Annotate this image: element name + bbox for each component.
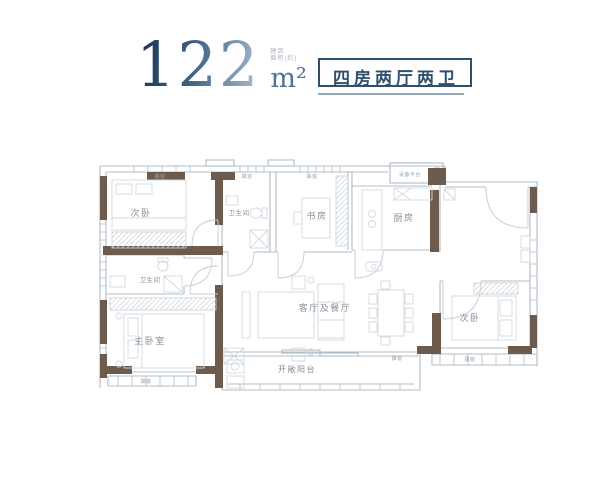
room-label-equipment-platform: 设备平台 (399, 171, 421, 178)
room-label-bathroom-top: 卫生间 (229, 208, 250, 217)
doors (184, 187, 528, 319)
walls (100, 160, 538, 390)
bay-window-label: 飘窗 (154, 173, 165, 180)
room-label-balcony: 开敞阳台 (278, 364, 316, 374)
wall-piers (100, 168, 537, 388)
bay-window-label: 飘窗 (391, 355, 402, 362)
room-label-living-dining: 客厅及餐厅 (299, 302, 352, 313)
room-label-kitchen: 厨房 (393, 212, 414, 223)
room-label-study: 书房 (306, 210, 327, 221)
room-label-bathroom-master: 卫生间 (140, 275, 161, 284)
room-label-master-bedroom: 主卧室 (134, 335, 166, 346)
room-label-bedroom-top-left: 次卧 (130, 207, 151, 218)
bay-window-label: 飘窗 (306, 173, 317, 180)
floor-plan-drawing: 次卧 卫生间 书房 厨房 设备平台 卫生间 主卧室 客厅及餐厅 次卧 开敞阳台 … (0, 0, 600, 500)
meter-icon (372, 264, 376, 268)
floor-plan-page: 122 建筑 面积(约) m² 四房两厅两卫 (0, 0, 600, 500)
closets (110, 176, 518, 310)
bay-window-label: 飘窗 (241, 173, 252, 180)
bay-window-label: 飘窗 (140, 378, 151, 385)
room-label-bedroom-bottom-right: 次卧 (459, 312, 480, 323)
bay-window-label: 飘窗 (464, 356, 475, 363)
